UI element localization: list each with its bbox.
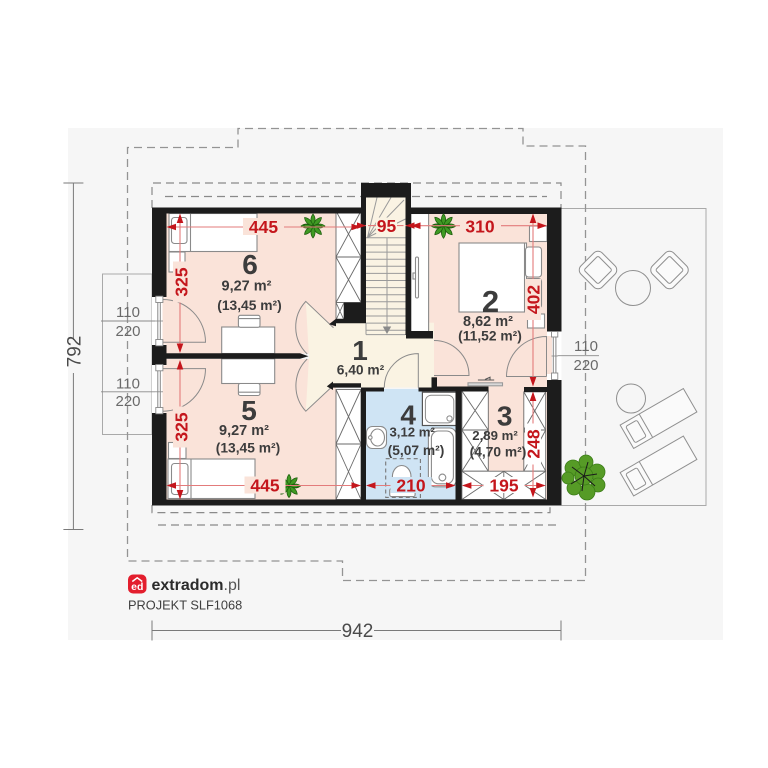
svg-text:extradom.pl: extradom.pl xyxy=(152,577,241,594)
svg-text:110: 110 xyxy=(116,376,140,393)
svg-text:402: 402 xyxy=(524,285,544,314)
svg-text:445: 445 xyxy=(250,476,279,496)
svg-text:1: 1 xyxy=(352,335,368,366)
svg-text:942: 942 xyxy=(342,621,374,642)
svg-text:2,89 m²: 2,89 m² xyxy=(472,428,518,443)
svg-text:110: 110 xyxy=(116,304,140,321)
svg-text:3,12 m²: 3,12 m² xyxy=(389,425,435,440)
svg-text:95: 95 xyxy=(377,216,397,236)
svg-text:110: 110 xyxy=(574,338,598,355)
svg-text:9,27 m²: 9,27 m² xyxy=(222,279,272,295)
svg-text:5: 5 xyxy=(241,395,257,426)
svg-text:3: 3 xyxy=(497,401,513,432)
svg-text:(4,70 m²): (4,70 m²) xyxy=(470,445,527,460)
svg-text:(13,45 m²): (13,45 m²) xyxy=(216,441,280,456)
svg-text:325: 325 xyxy=(172,412,192,441)
svg-text:PROJEKT SLF1068: PROJEKT SLF1068 xyxy=(128,598,242,613)
svg-text:210: 210 xyxy=(396,476,425,496)
svg-text:(5,07 m²): (5,07 m²) xyxy=(388,443,445,458)
svg-text:(13,45 m²): (13,45 m²) xyxy=(217,298,281,313)
svg-text:310: 310 xyxy=(465,217,494,237)
svg-text:248: 248 xyxy=(524,429,544,458)
svg-text:325: 325 xyxy=(172,267,192,296)
svg-text:445: 445 xyxy=(249,217,278,237)
svg-text:ed: ed xyxy=(131,581,143,593)
svg-text:9,27 m²: 9,27 m² xyxy=(219,423,269,439)
svg-text:195: 195 xyxy=(489,476,518,496)
svg-text:792: 792 xyxy=(65,336,86,368)
svg-text:6: 6 xyxy=(242,249,258,280)
svg-text:220: 220 xyxy=(115,323,140,340)
svg-text:220: 220 xyxy=(573,357,598,374)
svg-text:6,40 m²: 6,40 m² xyxy=(337,363,385,378)
svg-text:(11,52 m²): (11,52 m²) xyxy=(458,329,522,344)
svg-text:220: 220 xyxy=(115,393,140,410)
